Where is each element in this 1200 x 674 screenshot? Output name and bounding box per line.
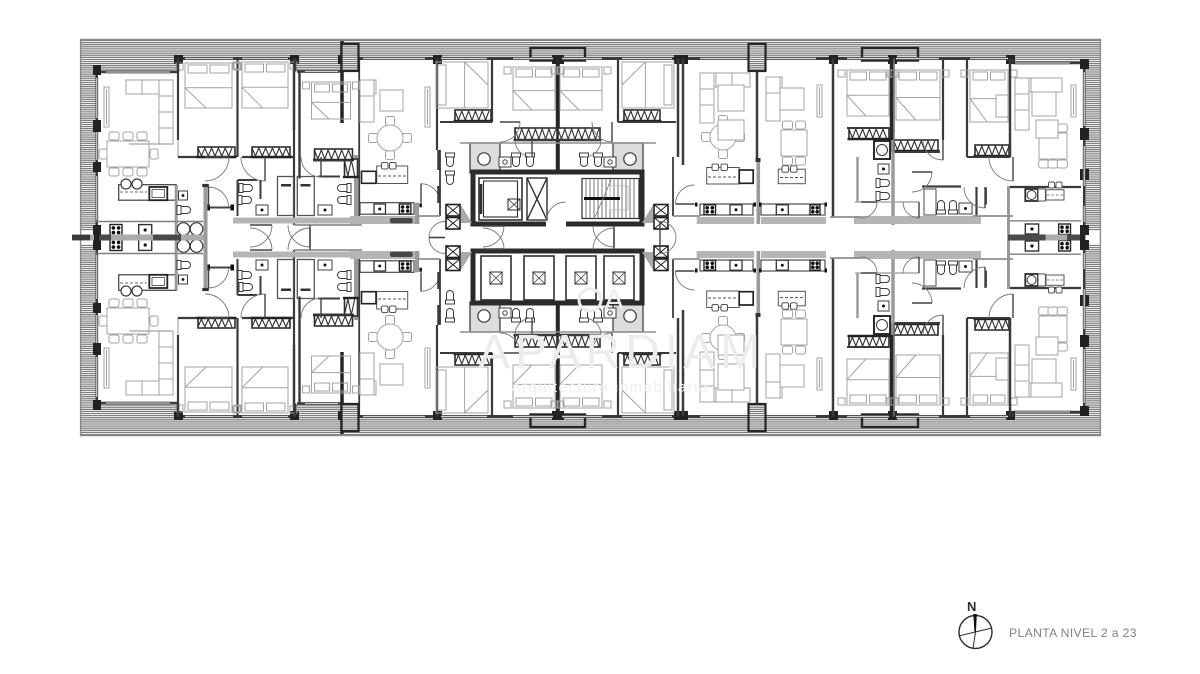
svg-text:arquitectura inmobiliaria: arquitectura inmobiliaria xyxy=(512,379,709,396)
svg-text:A: A xyxy=(604,284,624,317)
svg-text:PLANTA NIVEL 2 a 23: PLANTA NIVEL 2 a 23 xyxy=(1009,626,1137,640)
svg-text:N: N xyxy=(967,599,976,614)
svg-text:APARDIAM: APARDIAM xyxy=(478,326,765,379)
